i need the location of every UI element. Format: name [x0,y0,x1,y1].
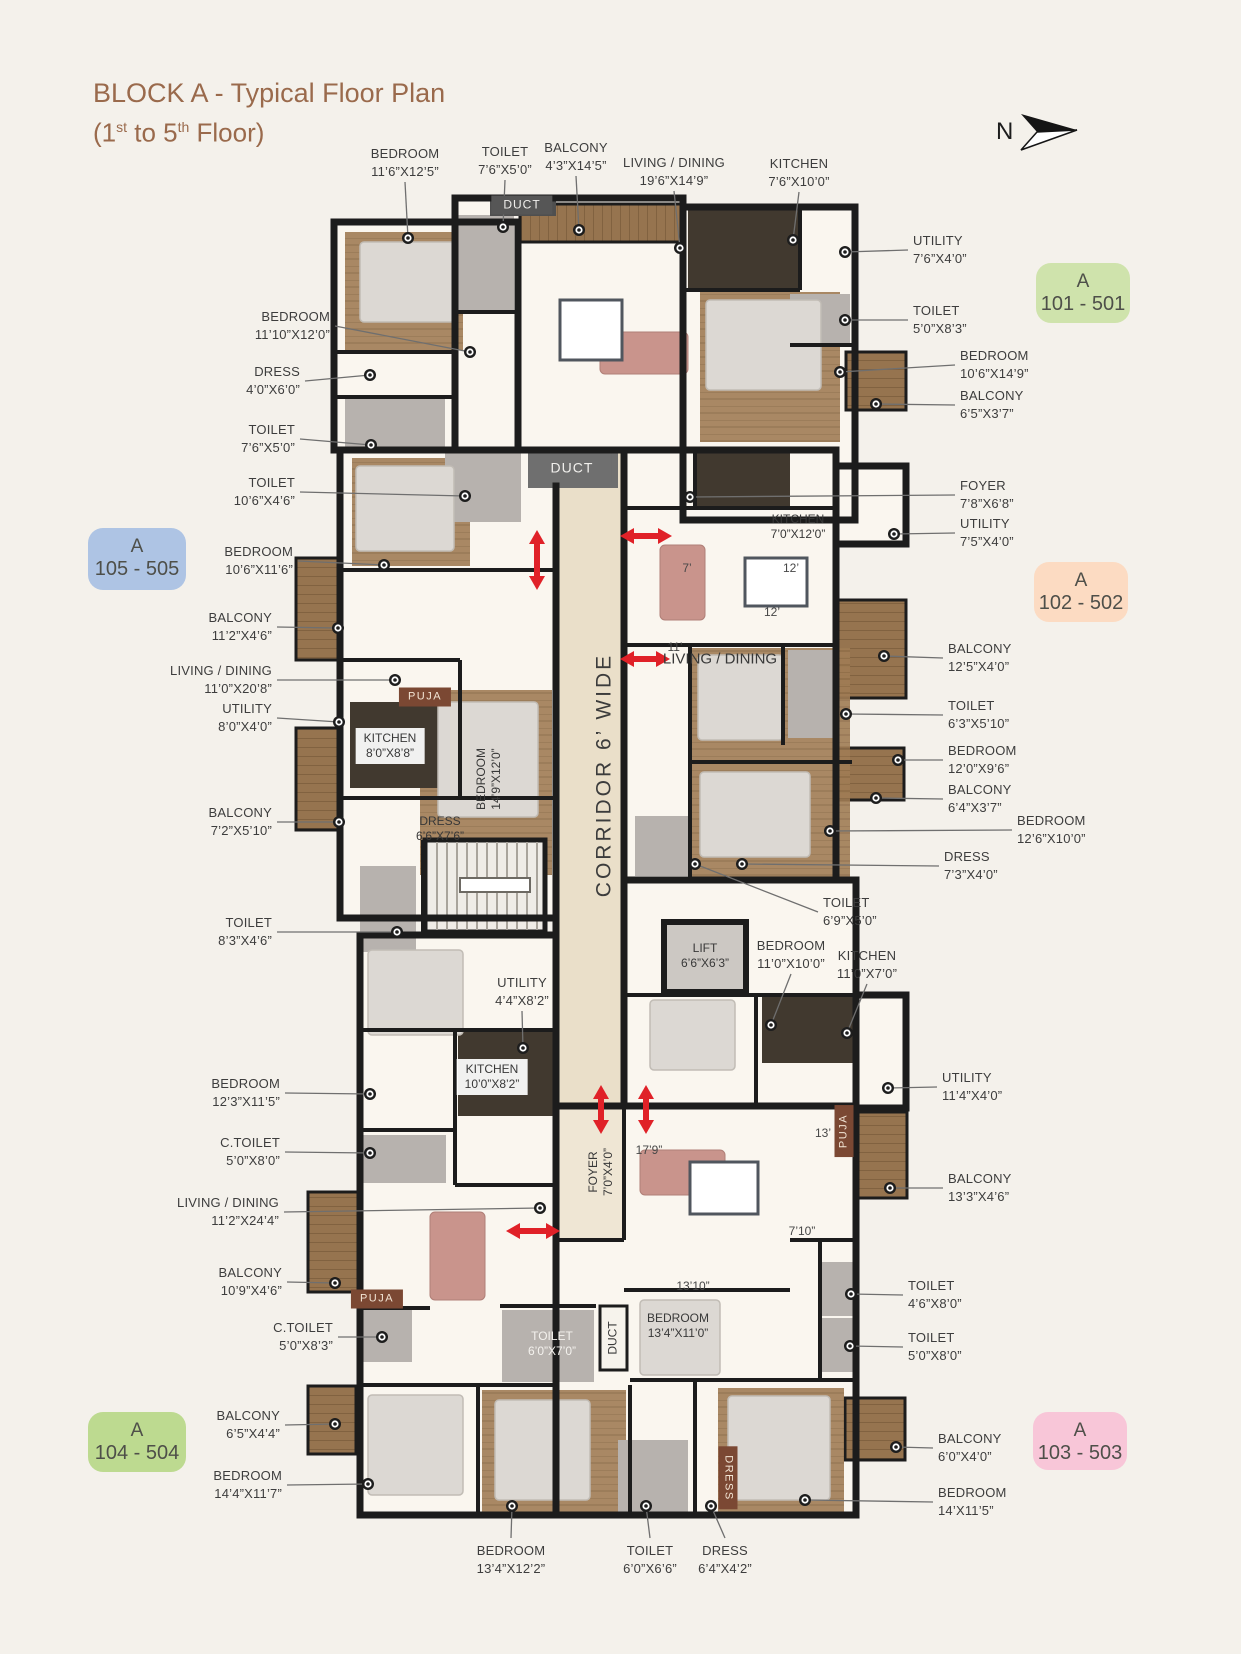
plan-label-dress-105: DRESS6’6”X7’6” [416,814,464,844]
room-callout: BEDROOM10’6”X14’9” [960,347,1029,383]
room-callout: BALCONY4’3”X14’5” [544,139,608,175]
unit-badge-105-505: A105 - 505 [88,528,186,590]
room-callout: DRESS7’3”X4’0” [944,848,998,884]
plan-label-kitchen-102: KITCHEN7’0”X12’0” [771,512,826,542]
room-callout: KITCHEN11’0”X7’0” [837,947,897,983]
room-callout: TOILET10’6”X4’6” [234,474,295,510]
room-callout: LIVING / DINING11’2”X24’4” [177,1194,279,1230]
room-callout: BALCONY6’0”X4’0” [938,1430,1002,1466]
room-callout: LIVING / DINING19’6”X14’9” [623,154,725,190]
room-callout: UTILITY11’4”X4’0” [942,1069,1002,1105]
dimension-label: 7’10” [789,1224,816,1238]
room-callout: TOILET6’3”X5’10” [948,697,1009,733]
room-callout: BALCONY10’9”X4’6” [218,1264,282,1300]
plan-label-duct-bottom: DUCT [606,1321,621,1354]
plan-label-kitchen-105: KITCHEN8’0”X8’8” [356,728,425,764]
plan-label-foyer-104: FOYER7’0”X4’0” [586,1148,616,1196]
room-callout: TOILET6’9”X5’0” [823,894,877,930]
room-callout: TOILET7’6”X5’0” [241,421,295,457]
dimension-label: 12’ [764,605,780,619]
room-callout: UTILITY8’0”X4’0” [218,700,272,736]
room-callout: BEDROOM11’0”X10’0” [757,937,826,973]
room-callout: BEDROOM14’X11’5” [938,1484,1007,1520]
plan-label-kitchen-104: KITCHEN10’0”X8’2” [457,1059,528,1095]
room-callout: BEDROOM12’6”X10’0” [1017,812,1086,848]
plan-label-toilet-103: TOILET6’0”X7’0” [528,1329,576,1359]
room-callout: BEDROOM13’4”X12’2” [477,1542,546,1578]
room-callout: UTILITY4’4”X8’2” [495,974,549,1010]
plan-label-duct-top: DUCT [491,196,552,215]
plan-label-duct-mid: DUCT [533,454,612,483]
unit-badge-104-504: A104 - 504 [88,1412,186,1472]
plan-label-dress-103: DRESS [719,1446,738,1509]
plan-label-corridor: CORRIDOR 6’ WIDE [597,653,612,897]
room-callout: BEDROOM12’0”X9’6” [948,742,1017,778]
unit-badge-102-502: A102 - 502 [1034,562,1128,622]
room-callout: C.TOILET5’0”X8’3” [273,1319,333,1355]
room-callout: TOILET6’0”X6’6” [623,1542,677,1578]
room-callout: DRESS4’0”X6’0” [246,363,300,399]
north-arrow-icon [1019,110,1081,154]
dimension-label: 17’9” [636,1143,663,1157]
room-callout: BALCONY6’5”X4’4” [216,1407,280,1443]
room-callout: TOILET5’0”X8’0” [908,1329,962,1365]
room-callout: TOILET4’6”X8’0” [908,1277,962,1313]
title-line1: BLOCK A - Typical Floor Plan [93,76,445,110]
room-callout: BEDROOM12’3”X11’5” [211,1075,280,1111]
plan-label-puja-104: PUJA [351,1290,403,1309]
room-callout: LIVING / DINING11’0”X20’8” [170,662,272,698]
plan-label-puja-105: PUJA [399,688,451,707]
dimension-label: 13’ [815,1126,831,1140]
page-title: BLOCK A - Typical Floor Plan (1st to 5th… [93,76,445,150]
room-callout: BALCONY6’4”X3’7” [948,781,1012,817]
room-callout: BALCONY7’2”X5’10” [208,804,272,840]
plan-label-puja-103: PUJA [835,1105,854,1157]
room-callout: BEDROOM11’6”X12’5” [371,145,440,181]
room-callout: TOILET7’6”X5’0” [478,143,532,179]
unit-badge-101-501: A101 - 501 [1036,263,1130,323]
compass: N [996,110,1081,154]
room-callout: TOILET5’0”X8’3” [913,302,967,338]
room-callout: DRESS6’4”X4’2” [698,1542,752,1578]
room-callout: BEDROOM11’10”X12’0” [255,308,330,344]
room-callout: BALCONY11’2”X4’6” [208,609,272,645]
room-callout: BEDROOM14’4”X11’7” [213,1467,282,1503]
room-callout: BALCONY13’3”X4’6” [948,1170,1012,1206]
room-callout: BEDROOM10’6”X11’6” [224,543,293,579]
dimension-label: 7’ [682,561,691,575]
room-callout: UTILITY7’6”X4’0” [913,232,967,268]
north-label: N [996,118,1013,146]
title-line2: (1st to 5th Floor) [93,110,445,150]
room-callout: FOYER7’8”X6’8” [960,477,1014,513]
plan-label-bedroom-105: BEDROOM14’9”X12’0” [474,748,504,810]
floor-plan-page: BLOCK A - Typical Floor Plan (1st to 5th… [0,0,1241,1654]
room-callout: KITCHEN7’6”X10’0” [768,155,829,191]
room-callout: BALCONY6’5”X3’7” [960,387,1024,423]
plan-label-bedroom-103-mid: BEDROOM13’4”X11’0” [647,1311,709,1341]
plan-label-lift: LIFT6’6”X6’3” [681,941,729,971]
unit-badge-103-503: A103 - 503 [1033,1412,1127,1470]
room-callout: UTILITY7’5”X4’0” [960,515,1014,551]
room-callout: BALCONY12’5”X4’0” [948,640,1012,676]
dimension-label: 11’ [667,640,682,654]
dimension-label: 13’10” [676,1279,709,1293]
room-callout: C.TOILET5’0”X8’0” [220,1134,280,1170]
dimension-label: 12’ [783,561,799,575]
room-callout: TOILET8’3”X4’6” [218,914,272,950]
